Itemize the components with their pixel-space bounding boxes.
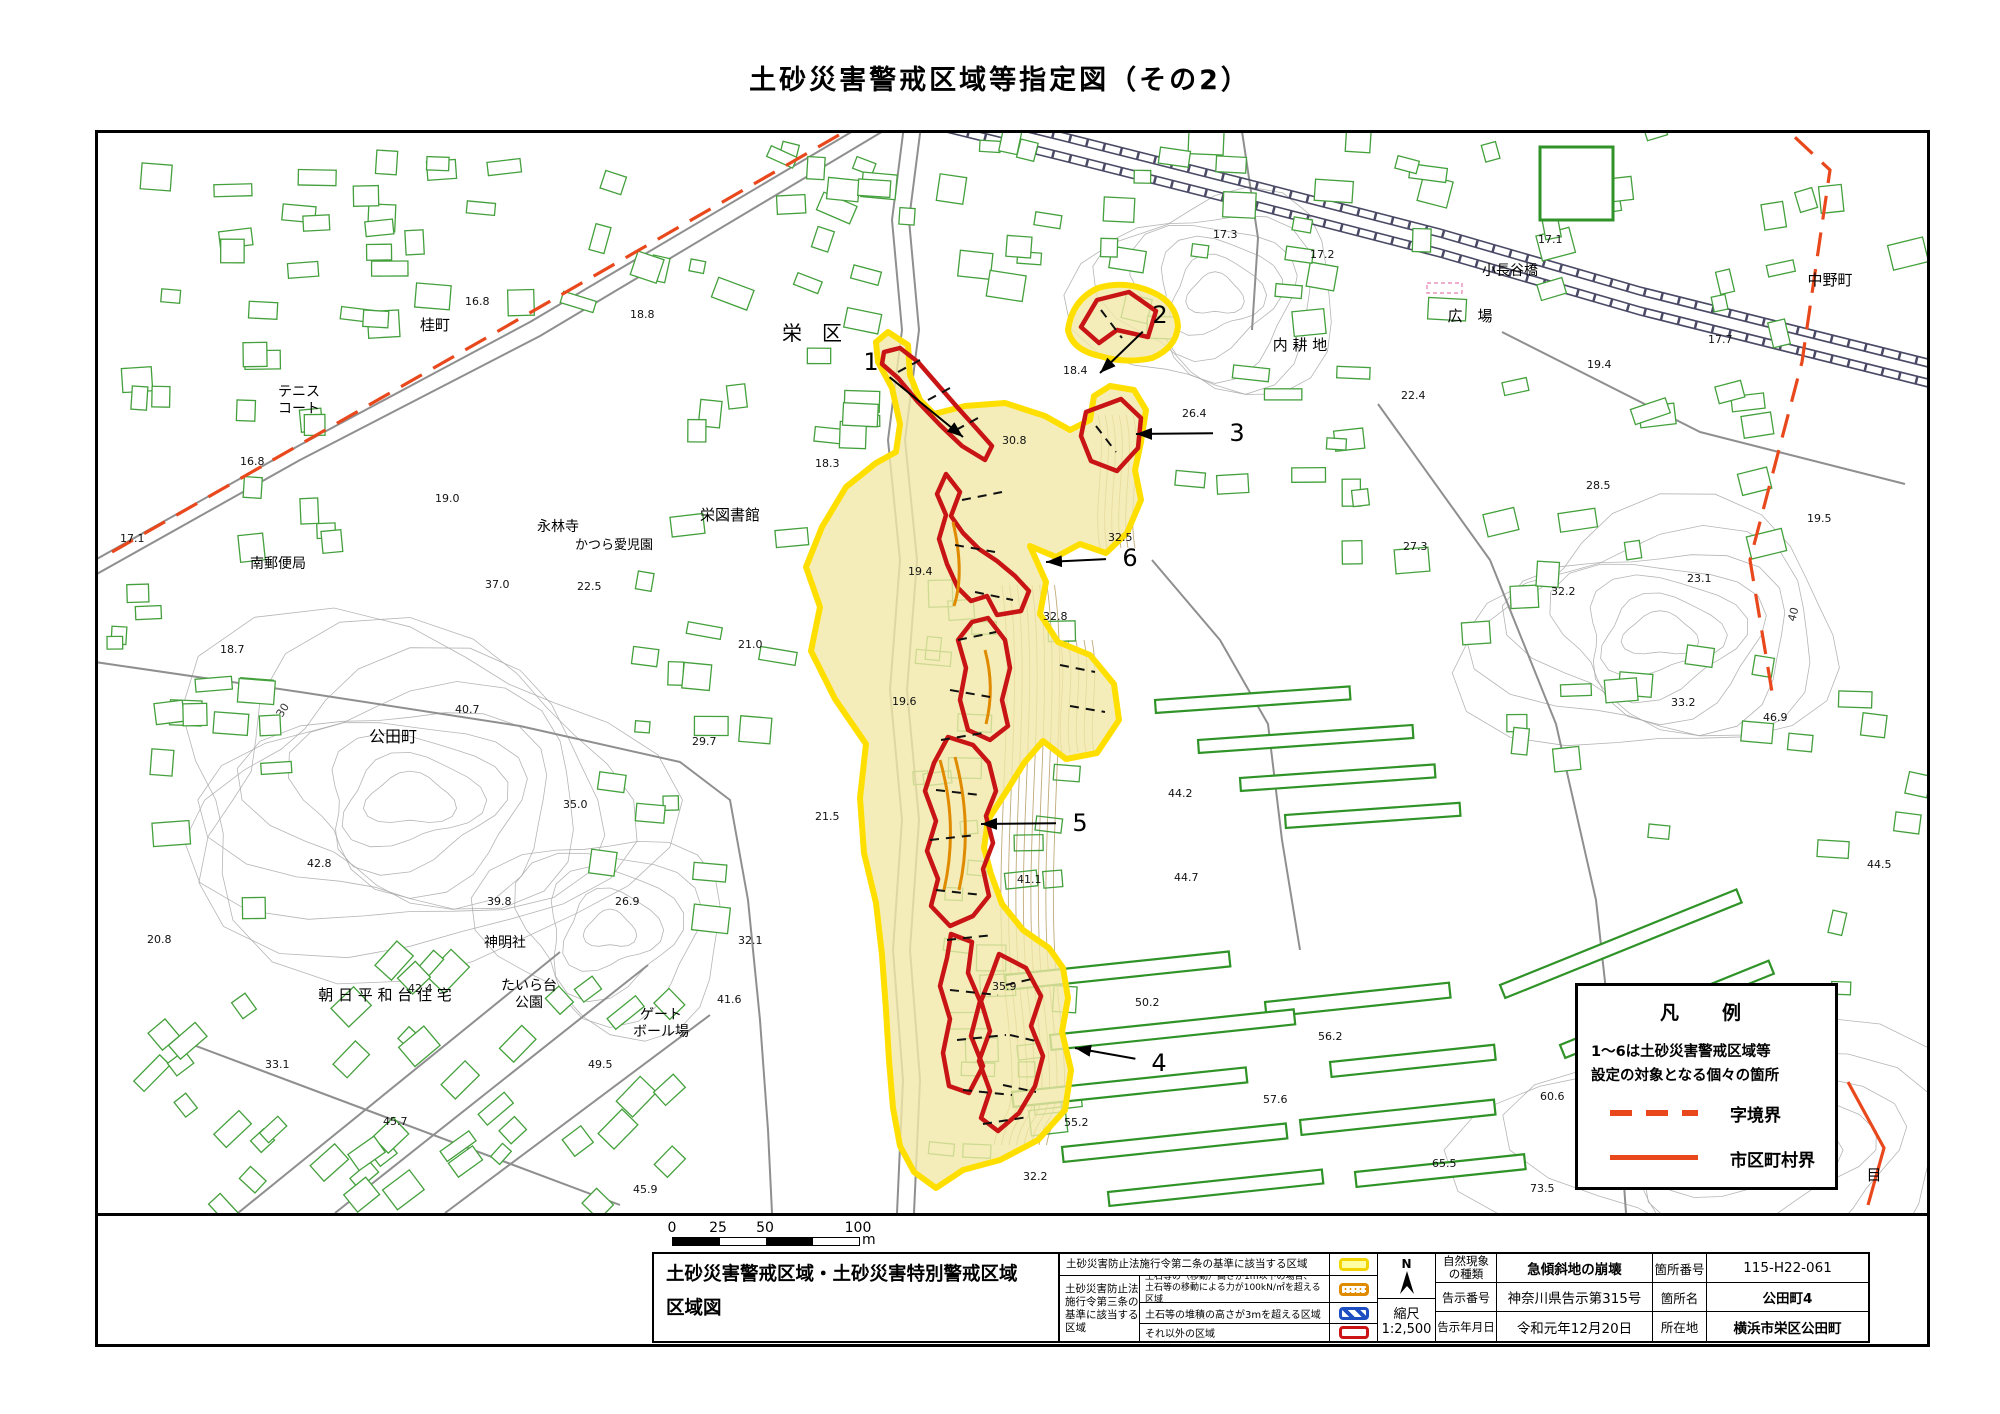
sheet-title-line2: 区域図 [666,1294,722,1320]
spot-height: 41.1 [1017,873,1042,886]
legend-row2-swatch-cell [1330,1276,1378,1303]
spot-height: 44.2 [1168,787,1193,800]
place-label: 永林寺 [537,519,579,535]
place-label: 広 場 [1447,307,1492,325]
legend-group-label: 土砂災害防止法 施行令第三条の 基準に該当する 区域 [1060,1276,1140,1341]
spot-height: 19.6 [892,695,917,708]
spot-height: 19.4 [1587,358,1612,371]
municipal-boundary-sample [1610,1155,1698,1160]
scale-bar-segments [672,1237,860,1246]
hazard-map-page: 土砂災害警戒区域等指定図（その2） 123654 17.317.217.117.… [0,0,2000,1414]
spot-height: 18.3 [815,457,840,470]
place-label: 神明社 [484,935,526,951]
place-label: 中野町 [1807,271,1852,289]
spot-height: 18.7 [220,643,245,656]
compass-cell: N [1378,1254,1436,1299]
spot-height: 39.8 [487,895,512,908]
warning-zone-swatch [1339,1258,1369,1271]
spot-height: 56.2 [1318,1030,1343,1043]
legend-row4-swatch-cell [1330,1324,1378,1341]
map-legend-box: 凡 例 1～6は土砂災害警戒区域等 設定の対象となる個々の箇所 字境界 市区町村… [1575,983,1838,1190]
legend-row1-swatch-cell [1330,1254,1378,1276]
spot-height: 50.2 [1135,996,1160,1009]
spot-height: 33.2 [1671,696,1696,709]
zone-number-6: 6 [1122,544,1137,572]
spot-height: 18.4 [1063,364,1088,377]
spot-height: 26.4 [1182,407,1207,420]
place-label: 小長谷橋 [1482,263,1538,279]
spot-height: 17.1 [120,532,145,545]
spot-height: 19.4 [908,565,933,578]
scale-value: 1:2,500 [1382,1322,1432,1337]
legend-note-line2: 設定の対象となる個々の箇所 [1591,1064,1779,1085]
spot-height: 19.5 [1807,512,1832,525]
info-value-site-name: 公田町4 [1707,1283,1868,1312]
legend-row3-swatch-cell [1330,1303,1378,1324]
spot-height: 16.8 [240,455,265,468]
spot-height: 27.3 [1403,540,1428,553]
spot-height: 21.5 [815,810,840,823]
spot-height: 22.4 [1401,389,1426,402]
zone-number-3: 3 [1229,419,1244,447]
spot-height: 16.8 [465,295,490,308]
info-label-location: 所在地 [1653,1312,1707,1341]
zone-number-2: 2 [1152,301,1167,329]
scale-tick-50: 50 [756,1220,774,1236]
spot-height: 19.0 [435,492,460,505]
sheet-title-line1: 土砂災害警戒区域・土砂災害特別警戒区域 [666,1260,1018,1286]
spot-height: 41.6 [717,993,742,1006]
legend-row2-text: 土石等の（移動）高さが1m以下の場合、 土石等の移動による力が100kN/㎡を超… [1140,1276,1330,1303]
spot-height: 65.5 [1432,1157,1457,1170]
legend-row4-text: それ以外の区域 [1140,1324,1330,1341]
zone-number-1: 1 [863,348,878,376]
info-label-notice-number: 告示番号 [1436,1283,1497,1312]
info-value-site-number: 115-H22-061 [1707,1254,1868,1283]
info-value-phenomenon: 急傾斜地の崩壊 [1497,1254,1653,1283]
sheet-title-cell: 土砂災害警戒区域・土砂災害特別警戒区域 区域図 [654,1254,1060,1341]
special-zone-swatch [1339,1326,1369,1339]
place-label: 公田町 [369,727,417,746]
scale-label: 縮尺 [1393,1303,1419,1322]
spot-height: 20.8 [147,933,172,946]
map-frame: 123654 17.317.217.117.719.416.818.816.81… [95,130,1930,1347]
spot-height: 49.5 [588,1058,613,1071]
spot-height: 40.7 [455,703,480,716]
spot-height: 73.5 [1530,1182,1555,1195]
north-arrow-icon [1397,1270,1417,1296]
place-label: 栄図書館 [700,506,760,524]
contour-label: 40 [1785,606,1801,623]
spot-height: 45.9 [633,1183,658,1196]
place-label: かつら愛児園 [575,538,653,553]
scale-tick-0: 0 [668,1220,677,1236]
place-label: コート [278,401,320,417]
spot-height: 22.5 [577,580,602,593]
spot-height: 32.2 [1551,585,1576,598]
spot-height: 17.1 [1538,233,1563,246]
spot-height: 17.2 [1310,248,1335,261]
info-label-site-name: 箇所名 [1653,1283,1707,1312]
scale-tick-25: 25 [709,1220,727,1236]
spot-height: 17.3 [1213,228,1238,241]
north-label: N [1401,1259,1411,1270]
spot-height: 37.0 [485,578,510,591]
place-label: 目 [1866,1166,1881,1184]
map-area: 123654 17.317.217.117.719.416.818.816.81… [98,133,1927,1216]
info-label-site-number: 箇所番号 [1653,1254,1707,1283]
spot-height: 23.1 [1687,572,1712,585]
scale-unit: m [862,1232,876,1248]
zone-number-5: 5 [1072,809,1087,837]
info-tables: 土砂災害警戒区域・土砂災害特別警戒区域 区域図 土砂災害防止法施行令第二条の基準… [652,1252,1870,1343]
spot-height: 18.8 [630,308,655,321]
spot-height: 35.0 [563,798,588,811]
legend-row3-text: 土石等の堆積の高さが3mを超える区域 [1140,1303,1330,1324]
spot-height: 32.2 [1023,1170,1048,1183]
legend-title: 凡 例 [1578,998,1835,1025]
place-label: 桂町 [420,316,450,334]
legend-row1-text: 土砂災害防止法施行令第二条の基準に該当する区域 [1060,1254,1330,1276]
aza-boundary-dashed-sample [1610,1110,1698,1116]
page-title: 土砂災害警戒区域等指定図（その2） [0,58,2000,97]
scale-bar: 0 25 50 100 m [658,1220,888,1250]
spot-height: 55.2 [1064,1116,1089,1129]
zone-number-4: 4 [1151,1049,1166,1077]
spot-height: 30.8 [1002,434,1027,447]
spot-height: 57.6 [1263,1093,1288,1106]
spot-height: 32.8 [1043,610,1068,623]
spot-height: 46.9 [1763,711,1788,724]
spot-height: 32.1 [738,934,763,947]
spot-height: 35.9 [992,980,1017,993]
spot-height: 44.7 [1174,871,1199,884]
debris-force-swatch [1339,1283,1369,1296]
spot-height: 17.7 [1708,333,1733,346]
place-label: ゲート [640,1007,682,1023]
bottom-strip: 0 25 50 100 m 土砂災害警戒区域・土砂災害特別警戒区域 区域図 [98,1216,1927,1344]
spot-height: 44.5 [1867,858,1892,871]
legend-note-line1: 1～6は土砂災害警戒区域等 [1591,1040,1771,1061]
spot-height: 21.0 [738,638,763,651]
place-label: たいら台 [501,978,557,994]
spot-height: 33.1 [265,1058,290,1071]
spot-height: 28.5 [1586,479,1611,492]
scale-cell: 縮尺 1:2,500 [1378,1299,1436,1341]
info-value-notice-number: 神奈川県告示第315号 [1497,1283,1653,1312]
place-label: 公園 [515,995,543,1011]
place-label: 朝 日 平 和 台 住 宅 [318,986,452,1004]
deposit-height-swatch [1339,1307,1369,1320]
municipal-boundary-label: 市区町村界 [1730,1146,1815,1171]
place-label: テニス [278,384,320,400]
place-label: 南郵便局 [250,556,306,572]
spot-height: 45.7 [383,1115,408,1128]
spot-height: 42.8 [307,857,332,870]
spot-height: 60.6 [1540,1090,1565,1103]
aza-boundary-label: 字境界 [1730,1101,1781,1126]
place-label: ボール場 [633,1024,689,1040]
place-label: 内 耕 地 [1273,336,1328,354]
info-value-location: 横浜市栄区公田町 [1707,1312,1868,1341]
info-label-notice-date: 告示年月日 [1436,1312,1497,1341]
spot-height: 29.7 [692,735,717,748]
place-label: 栄 区 [782,321,842,345]
spot-height: 32.5 [1108,531,1133,544]
info-value-notice-date: 令和元年12月20日 [1497,1312,1653,1341]
spot-height: 26.9 [615,895,640,908]
info-label-phenomenon: 自然現象の種類 [1436,1254,1497,1283]
